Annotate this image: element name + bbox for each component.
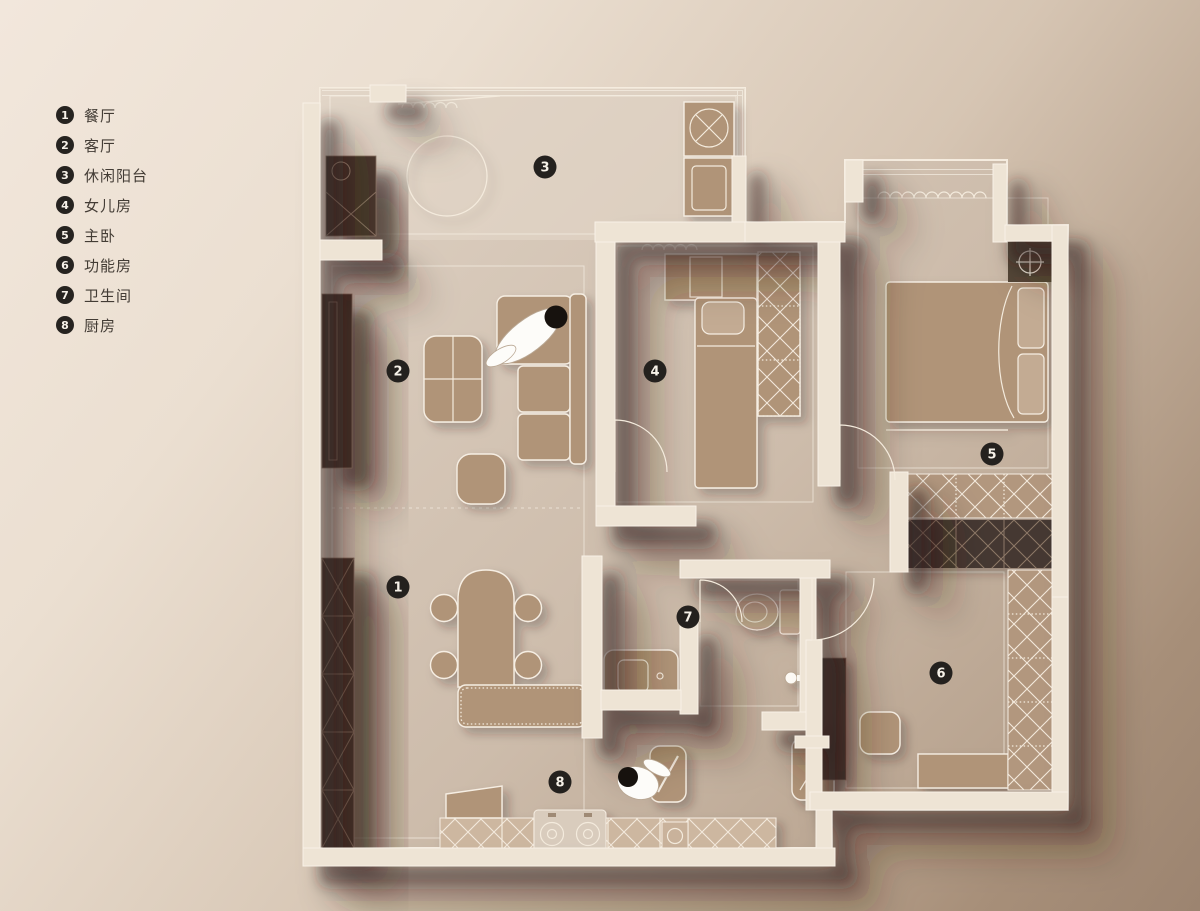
floorplan-page: 1 餐厅 2 客厅 3 休闲阳台 4 女儿房 5 主卧 6 功能房 7 卫生间 …: [0, 0, 1200, 911]
svg-text:5: 5: [987, 448, 996, 463]
room-badge-3: 3: [534, 156, 557, 179]
tall-storage-cabinet: [322, 558, 354, 848]
toilet: [736, 590, 800, 634]
svg-text:8: 8: [555, 776, 564, 791]
room-badge-1: 1: [387, 576, 410, 599]
room-badge-6: 6: [930, 662, 953, 685]
kitchen-sink: [662, 822, 688, 850]
room-badge-5: 5: [981, 443, 1004, 466]
balcony-floor: [320, 88, 745, 240]
dining-bench: [458, 685, 586, 727]
daughter-wardrobe: [758, 252, 800, 416]
svg-text:3: 3: [540, 161, 549, 176]
svg-text:1: 1: [393, 581, 402, 596]
svg-text:2: 2: [393, 365, 402, 380]
laundry-cabinet: [326, 156, 376, 236]
ac-unit: [1008, 242, 1052, 282]
floorplan-svg: 1 2 3 4 5 6 7 8: [0, 0, 1200, 911]
entry-door-leaf: [795, 736, 829, 748]
double-bed: [886, 282, 1048, 430]
balcony-washer-unit: [684, 102, 734, 216]
pouf: [457, 454, 505, 504]
room-badge-8: 8: [549, 771, 572, 794]
coffee-table: [424, 336, 482, 422]
stove: [534, 810, 606, 854]
room-badge-7: 7: [677, 606, 700, 629]
svg-text:4: 4: [650, 365, 659, 380]
function-wardrobe: [1008, 570, 1052, 790]
room-badge-4: 4: [644, 360, 667, 383]
tv-console: [322, 294, 352, 468]
room-badge-2: 2: [387, 360, 410, 383]
master-closet: [908, 474, 1052, 568]
svg-text:7: 7: [683, 611, 692, 626]
svg-text:6: 6: [936, 667, 945, 682]
